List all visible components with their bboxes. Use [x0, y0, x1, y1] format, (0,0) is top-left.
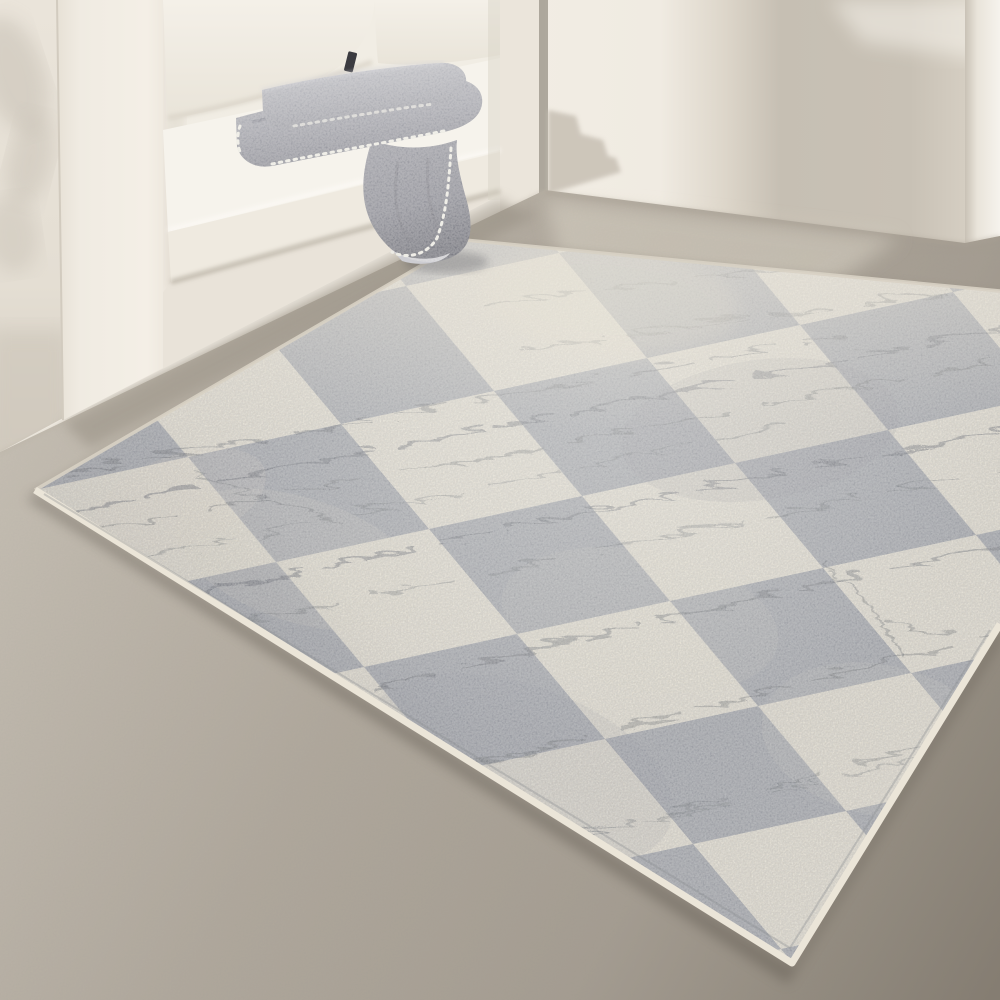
bench-right-edge-shade: [488, 0, 500, 200]
corner-wall-strip: [500, 0, 545, 212]
wall-corner-edge: [539, 0, 548, 194]
back-pillow-right: [375, 0, 500, 65]
bench-column: [57, 0, 163, 420]
right-wall-panel: [965, 0, 1000, 243]
room-photo: [0, 0, 1000, 1000]
room-photo-stage: [0, 0, 1000, 1000]
